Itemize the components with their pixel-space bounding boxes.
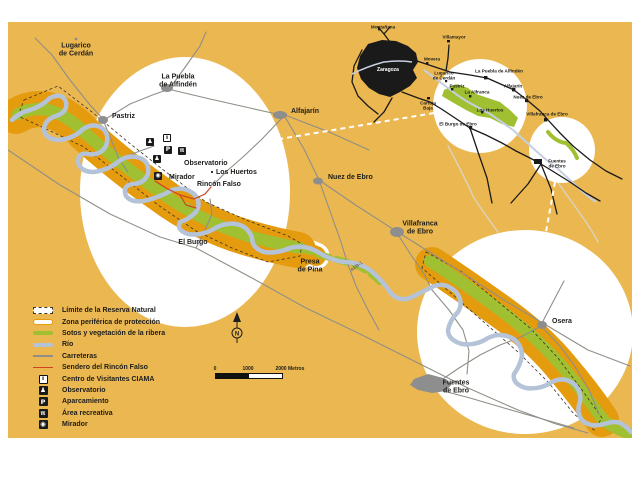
map-label-la-puebla-inset: La Puebla de Alfindén [475, 68, 523, 73]
map-label-montanana: Montañana [371, 24, 395, 29]
map-label-movera: Movera [424, 56, 440, 61]
observatory-icon: ♟ [146, 138, 154, 146]
mirador-icon: ◉ [39, 420, 48, 429]
map-label-villafranca-de-ebro: Villafranca de Ebro [402, 220, 437, 235]
legend-label: Área recreativa [62, 410, 113, 417]
parking-icon: P [39, 397, 48, 406]
legend-item: Río [30, 339, 240, 350]
legend-label: Río [62, 341, 73, 348]
town-nuez [313, 178, 323, 185]
legend: Límite de la Reserva NaturalZona perifér… [30, 305, 240, 430]
map-label-alfajarin-inset: Alfajarín [504, 83, 522, 88]
legend-item: Zona periférica de protección [30, 316, 240, 327]
info-icon: i [163, 134, 171, 142]
scale-tick: 0 [214, 366, 217, 372]
legend-label: Sotos y vegetación de la ribera [62, 330, 165, 337]
scale-tick: 1000 [242, 366, 253, 372]
map-label-villafranca-inset: Villafranca de Ebro [526, 111, 568, 116]
town-pastriz [98, 116, 108, 124]
legend-swatch-sendero [33, 367, 53, 369]
map-label-lugarico-inset: Lugarico de Cerdán [433, 71, 455, 82]
map-label-presa-de-pina: Presa de Pina [298, 258, 323, 273]
map-label-nuez-de-ebro: Nuez de Ebro [328, 174, 373, 182]
area-icon: π [178, 147, 186, 155]
legend-swatch-carreteras [33, 355, 53, 357]
observatory-icon: ♟ [39, 386, 48, 395]
scale-tick: 2000 [275, 366, 286, 372]
observatory-icon: ♟ [153, 155, 161, 163]
legend-swatch-rio [33, 343, 53, 347]
town-osera [537, 321, 547, 329]
map-label-mirador: Mirador [169, 174, 195, 182]
area-icon: π [39, 409, 48, 418]
map-label-el-burgo-inset: El Burgo de Ebro [439, 121, 477, 126]
legend-item: Sendero del Rincón Falso [30, 362, 240, 373]
map-label-pastriz-inset: Pastriz [449, 83, 464, 88]
legend-label: Zona periférica de protección [62, 319, 160, 326]
map-label-cartuja-baja: Cartuja Baja [420, 101, 436, 112]
map-label-lugarico: Lugarico de Cerdán [59, 42, 93, 57]
legend-label: Centro de Visitantes CIAMA [62, 376, 154, 383]
legend-item: PAparcamiento [30, 396, 240, 407]
map-label-los-huertos-inset: Los Huertos [477, 107, 504, 112]
zaragoza-label: Zaragoza [377, 67, 399, 73]
legend-label: Carreteras [62, 353, 97, 360]
map-label-observatorio: Observatorio [184, 160, 228, 168]
parking-icon: P [164, 146, 172, 154]
town-alfajarin [273, 111, 287, 119]
legend-label: Límite de la Reserva Natural [62, 307, 156, 314]
map-label-pastriz: Pastriz [112, 113, 135, 121]
map-document: Zaragoza N Límite de la Reserva Natura [0, 0, 640, 480]
legend-item: Carreteras [30, 351, 240, 362]
map-label-el-burgo: El Burgo [178, 239, 207, 247]
scale-unit: Metros [288, 366, 304, 372]
scale-bar-graphic [215, 373, 283, 379]
legend-item: Sotos y vegetación de la ribera [30, 328, 240, 339]
los-huertos-marker [211, 171, 213, 173]
mirador-icon: ◉ [154, 172, 162, 180]
map-label-la-alfranca-inset: La Alfranca [465, 89, 490, 94]
map-label-fuentes-inset: Fuentes de Ebro [548, 159, 566, 170]
legend-label: Sendero del Rincón Falso [62, 364, 148, 371]
town-lugarico-marker [75, 38, 78, 41]
legend-swatch-limite [33, 307, 53, 314]
map-label-la-puebla: La Puebla de Alfindén [159, 73, 197, 88]
map-label-los-huertos: Los Huertos [216, 169, 257, 177]
legend-item: Límite de la Reserva Natural [30, 305, 240, 316]
info-icon: i [39, 375, 48, 384]
map-label-osera: Osera [552, 318, 572, 326]
map-label-fuentes-de-ebro: Fuentes de Ebro [443, 379, 470, 394]
legend-swatch-zona [33, 319, 53, 325]
legend-label: Aparcamiento [62, 398, 109, 405]
legend-item: iCentro de Visitantes CIAMA [30, 373, 240, 384]
legend-item: πÁrea recreativa [30, 408, 240, 419]
map-label-alfajarin: Alfajarín [291, 108, 319, 116]
map-label-rincon-falso: Rincón Falso [197, 181, 241, 189]
scale-bar: 010002000Metros [214, 366, 310, 380]
legend-item: ◉Mirador [30, 419, 240, 430]
map-label-villamayor: Villamayor [442, 34, 465, 39]
legend-swatch-sotos [33, 331, 53, 335]
map-label-nuez-inset: Nuez de Ebro [513, 94, 542, 99]
legend-label: Mirador [62, 421, 88, 428]
legend-label: Observatorio [62, 387, 106, 394]
legend-item: ♟Observatorio [30, 385, 240, 396]
